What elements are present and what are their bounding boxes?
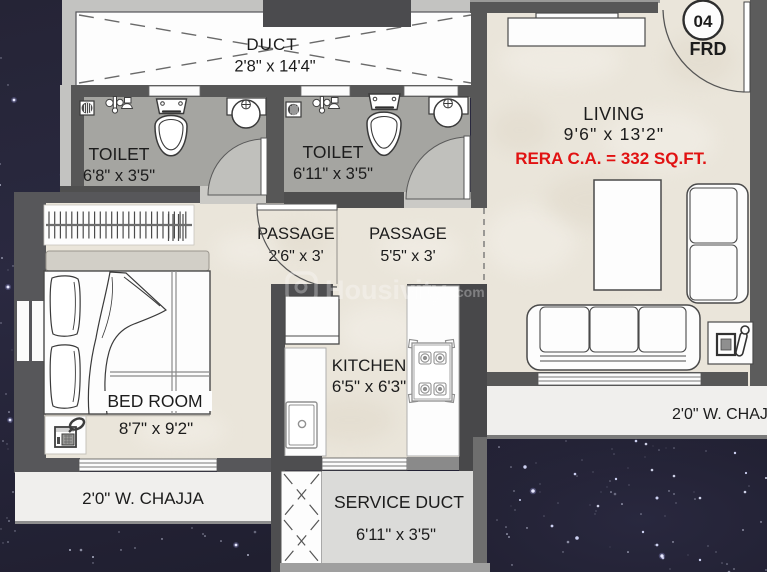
- svg-text:RERA C.A. = 332 SQ.FT.: RERA C.A. = 332 SQ.FT.: [515, 149, 707, 168]
- svg-text:LIVING: LIVING: [583, 104, 644, 124]
- svg-text:Housivity: Housivity: [325, 275, 447, 305]
- svg-text:DUCT: DUCT: [246, 35, 297, 54]
- svg-text:6'5" x 6'3": 6'5" x 6'3": [332, 377, 406, 396]
- svg-text:6'11" x 3'5": 6'11" x 3'5": [356, 526, 436, 544]
- svg-text:2'8" x 14'4": 2'8" x 14'4": [234, 58, 315, 76]
- svg-text:2'0" W. CHAJ: 2'0" W. CHAJ: [672, 406, 767, 423]
- svg-text:2'6" x 3': 2'6" x 3': [268, 248, 323, 265]
- svg-text:TOILET: TOILET: [89, 144, 150, 164]
- svg-text:SERVICE DUCT: SERVICE DUCT: [334, 492, 464, 512]
- svg-text:9'6" x 13'2": 9'6" x 13'2": [564, 124, 665, 144]
- svg-text:BED ROOM: BED ROOM: [107, 391, 202, 411]
- svg-text:2'0" W. CHAJJA: 2'0" W. CHAJJA: [82, 489, 204, 508]
- svg-text:6'8" x 3'5": 6'8" x 3'5": [83, 167, 155, 185]
- svg-text:8'7" x 9'2": 8'7" x 9'2": [119, 419, 193, 438]
- svg-text:KITCHEN: KITCHEN: [332, 356, 407, 375]
- svg-text:PASSAGE: PASSAGE: [369, 225, 447, 243]
- svg-text:04: 04: [694, 12, 713, 31]
- svg-text:6'11" x 3'5": 6'11" x 3'5": [293, 165, 373, 183]
- svg-text:5'5" x 3': 5'5" x 3': [380, 248, 435, 265]
- svg-text:TOILET: TOILET: [303, 142, 364, 162]
- svg-text:PASSAGE: PASSAGE: [257, 225, 335, 243]
- svg-text:FRD: FRD: [690, 39, 727, 59]
- svg-text:.com: .com: [452, 284, 485, 300]
